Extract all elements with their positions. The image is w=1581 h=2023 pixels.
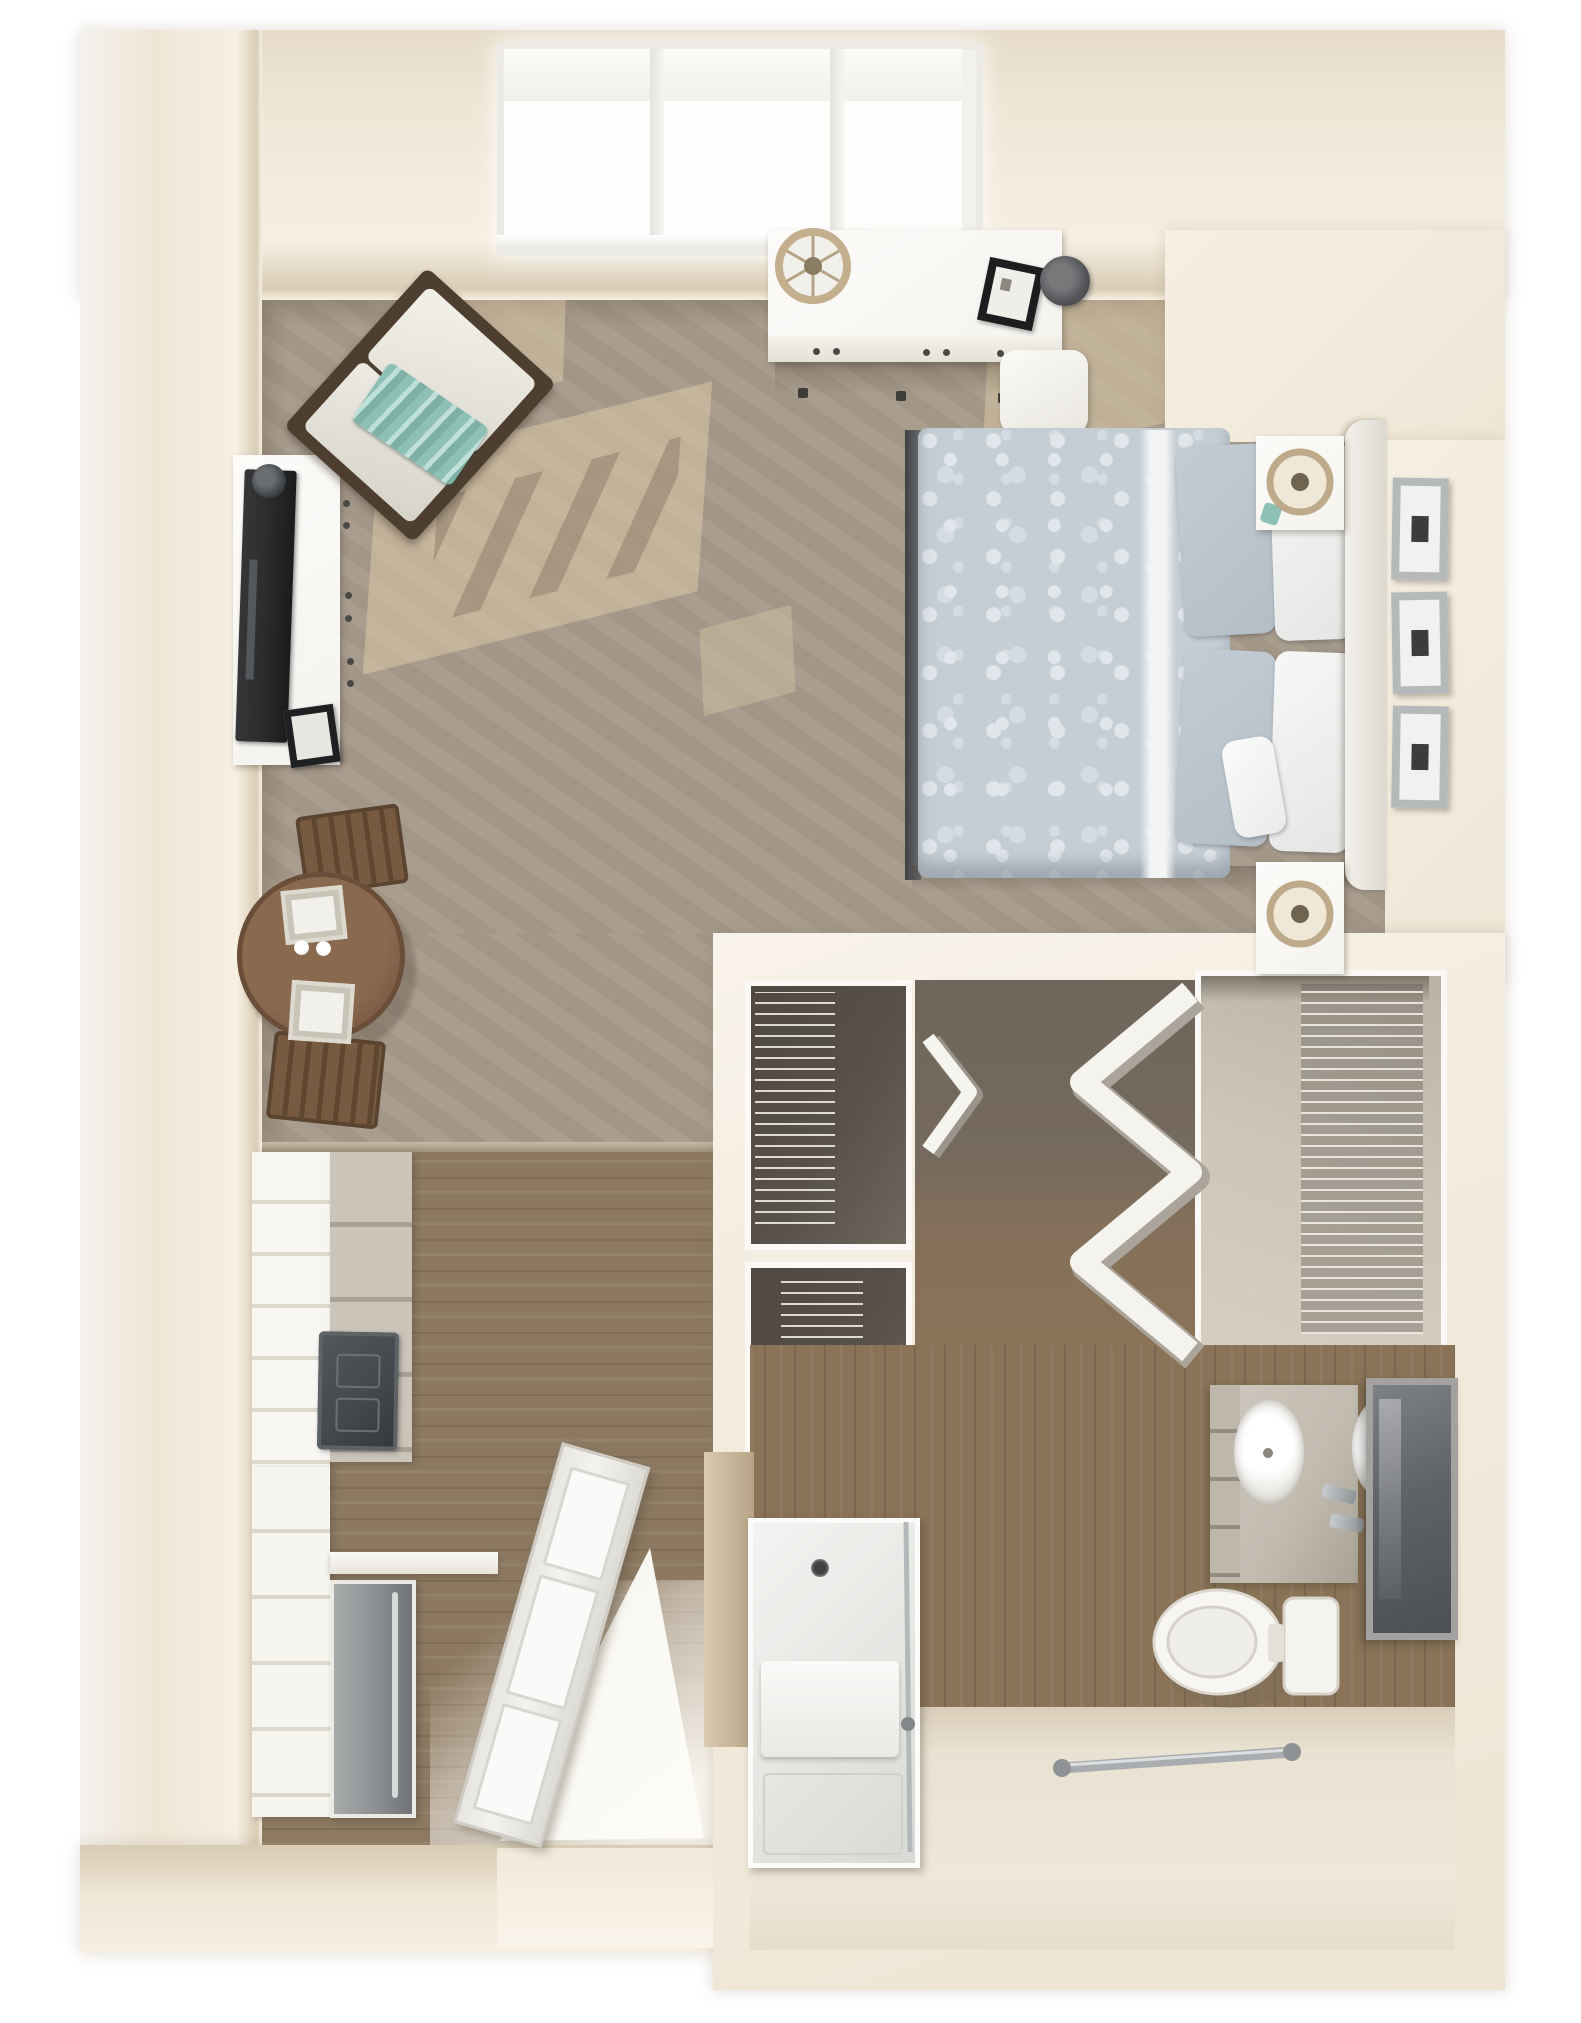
grab-bar-mount bbox=[1053, 1759, 1071, 1777]
toilet-tank bbox=[1284, 1598, 1338, 1694]
fixtures-overlay bbox=[0, 0, 1581, 2023]
shower-handle bbox=[901, 1717, 915, 1731]
accordion-door bbox=[1082, 992, 1190, 1352]
entry-doorway bbox=[497, 1848, 713, 1948]
shower-glass bbox=[906, 1522, 910, 1852]
desk-lamp-finial bbox=[804, 257, 822, 275]
door-panel bbox=[506, 1574, 600, 1710]
toilet-hinge bbox=[1268, 1624, 1284, 1662]
nightstand-lamp-finial bbox=[1291, 905, 1309, 923]
toilet-seat bbox=[1168, 1607, 1256, 1677]
grab-bar-mount bbox=[1283, 1743, 1301, 1761]
floorplan-canvas bbox=[0, 0, 1581, 2023]
door-panel bbox=[543, 1466, 631, 1581]
grab-bar bbox=[1062, 1752, 1292, 1768]
door-panel bbox=[473, 1703, 563, 1826]
nightstand-lamp-finial bbox=[1291, 473, 1309, 491]
